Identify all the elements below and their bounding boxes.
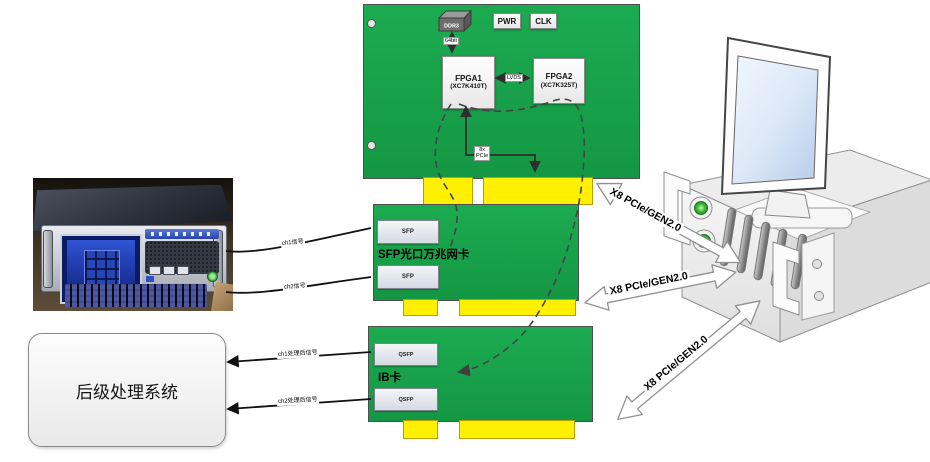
fpga2-part: (XC7K325T) [541,82,577,90]
instrument-nameplate [145,229,219,238]
wire-label-in1: ch1信号 [281,239,305,248]
ib-card: QSFP QSFP IB卡 [368,326,593,422]
wire-label-in2: ch2信号 [283,283,307,292]
system-architecture-diagram: 后级处理系统 [0,0,930,462]
instrument-port [163,266,175,275]
qsfp-port-label: QSFP [399,397,414,403]
clk-label: CLK [535,17,551,26]
power-led [695,202,708,215]
instrument-keyboard [65,284,207,307]
lvds-label: LVDS [505,74,523,82]
instrument-logo [146,276,154,283]
edge-connector [423,177,473,205]
edge-connector [483,177,593,205]
mounting-hole [367,19,376,28]
qsfp-port-label: QSFP [399,352,414,358]
fpga2-chip: FPGA2 (XC7K325T) [533,58,585,104]
instrument-photo [33,178,233,311]
sfp-card: SFP SFP SFP光口万兆网卡 [373,204,579,301]
fpga2-name: FPGA2 [546,72,573,82]
instrument-port [177,266,189,275]
wire-label-out2: ch2处理后信号 [277,397,319,406]
ddr-bus-label: 64bit [443,37,459,45]
wire-label-out1: ch1处理后信号 [277,350,319,359]
post-processing-system-box: 后级处理系统 [28,333,226,447]
ddr3-chip: DDR3 [438,10,472,32]
instrument-power-button [207,271,218,282]
instrument-port [149,266,161,275]
pwr-label: PWR [498,17,517,26]
instrument-left-handle [43,230,53,288]
pcie-bus-label: 8x PCIe [474,146,490,161]
ddr3-label: DDR3 [444,24,459,30]
fpga1-part: (XC7K410T) [450,83,486,91]
fpga1-chip: FPGA1 (XC7K410T) [442,56,495,109]
edge-connector [403,299,438,316]
sfp-card-title: SFP光口万兆网卡 [378,246,469,262]
edge-connector [403,420,438,439]
rack-flange [802,233,834,320]
qsfp-port-bottom: QSFP [374,388,438,411]
mounting-hole [367,141,376,150]
screw-hole [813,260,822,269]
ib-card-title: IB卡 [378,369,401,385]
clk-module: CLK [530,13,557,29]
pcie-bus-label-l2: PCIe [476,153,488,159]
screw-hole [815,292,824,301]
edge-connector [459,420,575,439]
pwr-module: PWR [493,13,521,29]
sfp-port-label: SFP [402,274,414,280]
sfp-port-bottom: SFP [377,265,439,289]
sfp-port-label: SFP [402,229,414,235]
fpga-board: DDR3 PWR CLK FPGA1 (XC7K410T) FPGA2 (XC7… [363,4,640,179]
qsfp-port-top: QSFP [374,343,438,366]
edge-connector [459,299,576,316]
monitor-screen [732,56,818,184]
fpga1-name: FPGA1 [455,74,482,84]
post-processing-label: 后级处理系统 [76,378,178,403]
sfp-port-top: SFP [377,220,439,244]
host-computer-illustration [640,12,930,372]
